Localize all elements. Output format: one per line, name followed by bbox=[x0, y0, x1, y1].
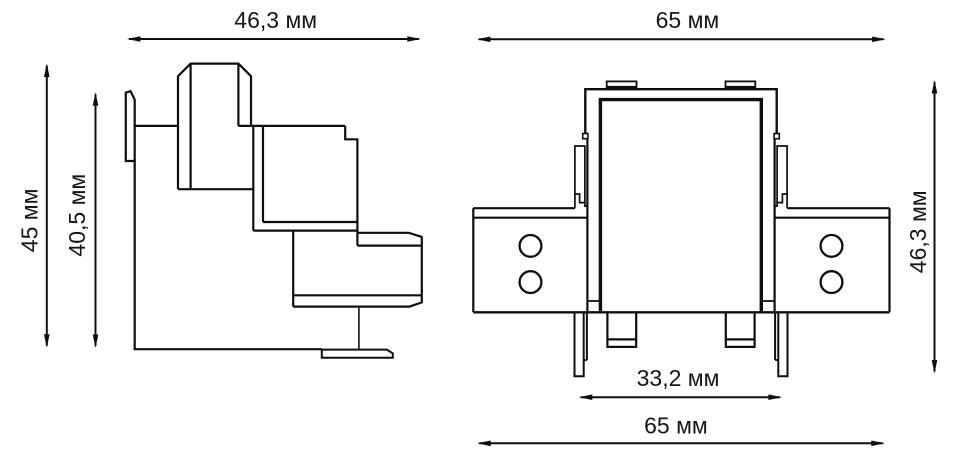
svg-text:46,3 мм: 46,3 мм bbox=[905, 190, 931, 273]
svg-text:65 мм: 65 мм bbox=[644, 413, 708, 439]
svg-text:33,2 мм: 33,2 мм bbox=[637, 365, 720, 391]
svg-text:40,5 мм: 40,5 мм bbox=[64, 174, 90, 257]
svg-text:65 мм: 65 мм bbox=[656, 7, 720, 33]
svg-text:45 мм: 45 мм bbox=[16, 189, 42, 253]
svg-text:46,3 мм: 46,3 мм bbox=[234, 7, 317, 33]
